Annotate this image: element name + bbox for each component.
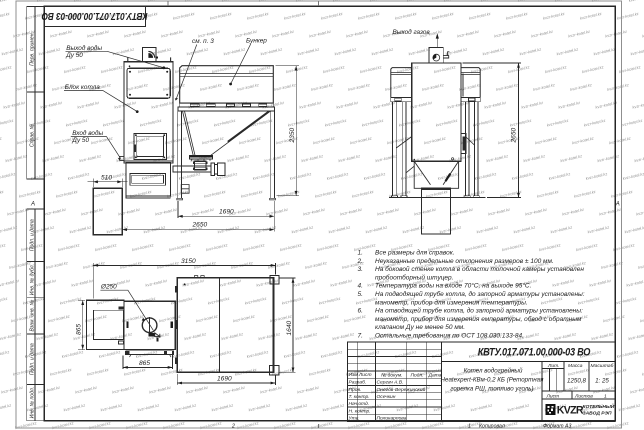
svg-text:Масштаб: Масштаб (591, 363, 614, 369)
svg-text:1690: 1690 (219, 208, 234, 215)
svg-text:см. п. 3: см. п. 3 (192, 38, 214, 45)
svg-text:KVZR: KVZR (557, 404, 584, 416)
svg-text:2350: 2350 (289, 127, 296, 143)
svg-text:Онегов-Вережинский: Онегов-Вережинский (377, 386, 426, 393)
svg-text:КВТУ.017.071.00.000-03 ВО: КВТУ.017.071.00.000-03 ВО (478, 347, 591, 359)
svg-text:Т. контр.: Т. контр. (349, 394, 370, 400)
svg-text:865: 865 (139, 360, 150, 367)
svg-text:Неуказанные предельные отклоне: Неуказанные предельные отклонения размер… (375, 257, 554, 265)
svg-text:На подводящей трубе котла, до: На подводящей трубе котла, до запорной а… (375, 290, 585, 298)
svg-text:Ду 50: Ду 50 (71, 137, 89, 144)
svg-text:КВТУ.017.071.00.000-03 ВО: КВТУ.017.071.00.000-03 ВО (41, 10, 148, 22)
svg-text:2650: 2650 (192, 222, 208, 229)
svg-text:Н. контр.: Н. контр. (349, 408, 371, 414)
svg-text:Лист: Лист (546, 393, 560, 399)
svg-text:865: 865 (76, 324, 83, 335)
svg-text:1690: 1690 (217, 375, 232, 382)
svg-text:2650: 2650 (511, 127, 518, 143)
svg-text:На отводящей трубе котла, до з: На отводящей трубе котла, до запорной ар… (375, 307, 583, 315)
svg-text:Разраб.: Разраб. (349, 380, 367, 386)
svg-text:1: 1 (468, 423, 471, 429)
svg-text:1: 1 (604, 393, 607, 399)
svg-text:1250,8: 1250,8 (567, 378, 586, 385)
svg-text:Вход воды: Вход воды (72, 129, 103, 137)
svg-text:Выход газов: Выход газов (393, 28, 431, 36)
svg-text:Копировал: Копировал (479, 423, 505, 429)
svg-text:Сергач А.В.: Сергач А.В. (377, 380, 404, 386)
svg-text:Блок котла: Блок котла (65, 84, 100, 91)
svg-text:5.: 5. (358, 291, 364, 298)
svg-text:2.: 2. (357, 258, 364, 265)
svg-text:4.: 4. (358, 283, 364, 290)
svg-text:Подп.: Подп. (411, 372, 424, 378)
svg-text:Ду 50: Ду 50 (65, 52, 83, 59)
svg-text:Листов: Листов (574, 393, 593, 399)
svg-text:манометр, прибор для измерения: манометр, прибор для измерения температу… (375, 298, 528, 306)
svg-text:Справ. №: Справ. № (29, 123, 35, 147)
svg-text:Heatexpert-КВм-0,2 КБ (Ретортн: Heatexpert-КВм-0,2 КБ (Ретортная (441, 377, 545, 384)
svg-text:Масса: Масса (568, 363, 583, 369)
svg-text:Формат А3: Формат А3 (543, 423, 571, 429)
svg-text:Взам. инв. №: Взам. инв. № (29, 300, 35, 332)
svg-text:510: 510 (101, 175, 112, 182)
svg-text:7.: 7. (358, 333, 364, 340)
svg-text:Инв. № подл.: Инв. № подл. (29, 387, 35, 419)
svg-text:горелка РШ, топливо уголь): горелка РШ, топливо уголь) (450, 386, 533, 393)
svg-text:Температура воды на входе 70°С: Температура воды на входе 70°С, на выход… (375, 282, 532, 290)
svg-text:ЗАВОД РЭП: ЗАВОД РЭП (583, 410, 612, 416)
svg-text:Остальные требования по ОСТ 10: Остальные требования по ОСТ 108.030.133-… (375, 332, 524, 340)
svg-text:А: А (30, 202, 35, 208)
svg-text:Поликарпова: Поликарпова (377, 416, 407, 422)
svg-text:А: А (615, 202, 620, 208)
svg-text:манометр, прибор для измерения: манометр, прибор для измерения емператур… (375, 315, 582, 323)
svg-text:клапаном Ду не менее 50 мм.: клапаном Ду не менее 50 мм. (375, 324, 465, 331)
svg-text:1: 25: 1: 25 (595, 378, 609, 385)
svg-text:Подп. и дата: Подп. и дата (29, 343, 35, 375)
svg-text:На боковой стенке котла в обла: На боковой стенке котла в области топочн… (375, 265, 584, 273)
svg-text:Ø250: Ø250 (100, 283, 117, 290)
svg-text:1640: 1640 (286, 320, 293, 335)
svg-text:Бункер: Бункер (246, 38, 267, 45)
svg-text:Лит.: Лит. (547, 363, 559, 369)
svg-text:№ докум.: № докум. (381, 372, 403, 378)
svg-text:Утв.: Утв. (349, 416, 360, 422)
svg-text:Дата: Дата (428, 372, 442, 378)
svg-text:Котел водогрейный: Котел водогрейный (464, 368, 523, 375)
svg-text:3150: 3150 (181, 258, 196, 265)
svg-text:3.: 3. (358, 266, 364, 273)
svg-text:Выход воды: Выход воды (66, 44, 102, 52)
svg-text:Пров.: Пров. (349, 387, 362, 393)
svg-text:6.: 6. (358, 308, 364, 315)
svg-text:Осечкин: Осечкин (377, 394, 396, 400)
svg-text:Нач.отд.: Нач.отд. (349, 401, 370, 407)
svg-text:2: 2 (231, 423, 235, 429)
svg-text:пробоотборный штуцер.: пробоотборный штуцер. (375, 273, 454, 281)
svg-text:Инв. № дубл.: Инв. № дубл. (29, 264, 35, 295)
svg-text:Подп. и дата: Подп. и дата (29, 219, 35, 251)
svg-text:1.: 1. (358, 250, 364, 257)
svg-text:Все размеры для справок.: Все размеры для справок. (375, 249, 455, 257)
svg-text:Перв. примен.: Перв. примен. (29, 32, 35, 66)
svg-text:Изм Лист: Изм Лист (349, 372, 372, 378)
